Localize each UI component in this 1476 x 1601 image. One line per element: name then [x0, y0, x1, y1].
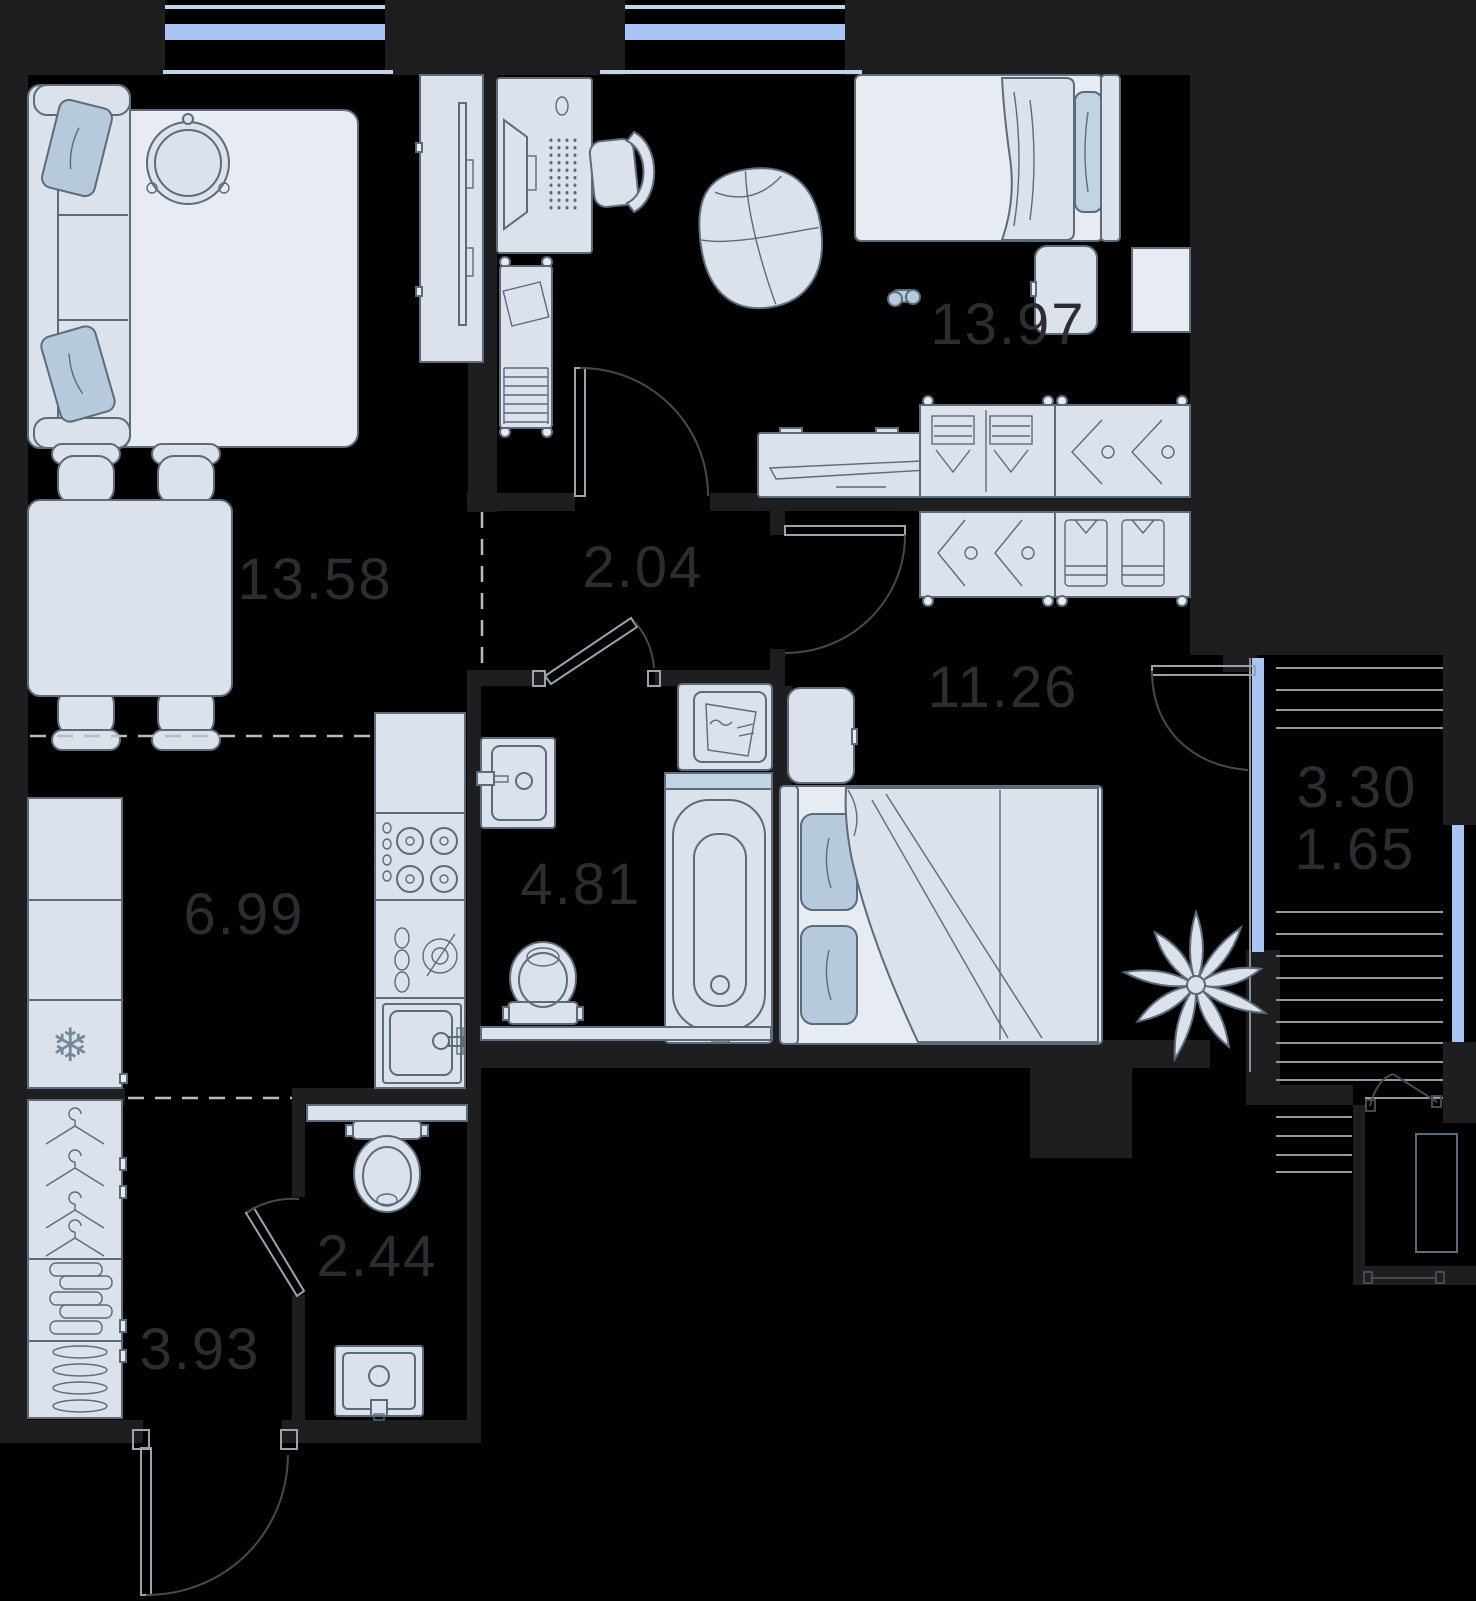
- floor-plan: ❄: [0, 0, 1476, 1601]
- area-label-wc: 2.44: [317, 1228, 438, 1286]
- bathroom-sink: [477, 738, 555, 828]
- area-label-balcony-reduced: 1.65: [1295, 821, 1416, 879]
- hall-closet: [28, 1100, 126, 1418]
- wc-toilet: [346, 1121, 428, 1212]
- tv-cabinet: [416, 75, 483, 362]
- double-bed: [780, 786, 1102, 1044]
- wardrobe-hangers-shirts: [920, 512, 1190, 606]
- bean-bag: [687, 156, 835, 319]
- door-entry: [133, 1430, 297, 1595]
- bathtub: [665, 773, 772, 1043]
- gamepad-icon: [888, 290, 920, 306]
- dining-set: [28, 444, 232, 750]
- radiator: [1132, 248, 1190, 332]
- wardrobe-shelves: [920, 396, 1190, 497]
- door-wc: [246, 1199, 304, 1296]
- kitchen-counter: [375, 713, 465, 1088]
- door-bathroom: [533, 618, 660, 686]
- area-label-entry-hall: 3.93: [140, 1321, 261, 1379]
- washing-machine: [678, 684, 772, 770]
- door-bedroom-1: [575, 368, 708, 496]
- bathroom-toilet: [503, 942, 583, 1024]
- area-label-balcony-full: 3.30: [1297, 759, 1418, 817]
- ac-unit: [1416, 1134, 1457, 1252]
- area-label-bedroom-1: 13.97: [930, 296, 1085, 354]
- area-label-bathroom: 4.81: [521, 856, 642, 914]
- bookshelf: [500, 257, 552, 437]
- area-label-hallway: 2.04: [583, 539, 704, 597]
- sofa: [28, 85, 130, 448]
- desk: [497, 78, 592, 253]
- wc-sink: [335, 1346, 423, 1420]
- door-bedroom-2: [785, 526, 905, 653]
- kitchen-cabinets-fridge: ❄: [28, 798, 127, 1088]
- door-neighbor-balcony: [1364, 1074, 1457, 1283]
- area-label-living-dining: 13.58: [237, 551, 392, 609]
- dresser: [758, 428, 938, 497]
- balcony-decking: [1276, 668, 1443, 1172]
- area-label-kitchen: 6.99: [184, 886, 305, 944]
- snowflake-icon: ❄: [51, 1019, 90, 1071]
- door-balcony: [1152, 666, 1255, 770]
- nightstand: [788, 688, 857, 783]
- plant: [1123, 912, 1268, 1061]
- wc-shelf: [307, 1105, 467, 1121]
- desk-chair: [589, 132, 655, 212]
- area-label-bedroom-2: 11.26: [928, 659, 1079, 717]
- bathroom-ledge: [481, 1027, 771, 1040]
- single-bed: [855, 75, 1120, 241]
